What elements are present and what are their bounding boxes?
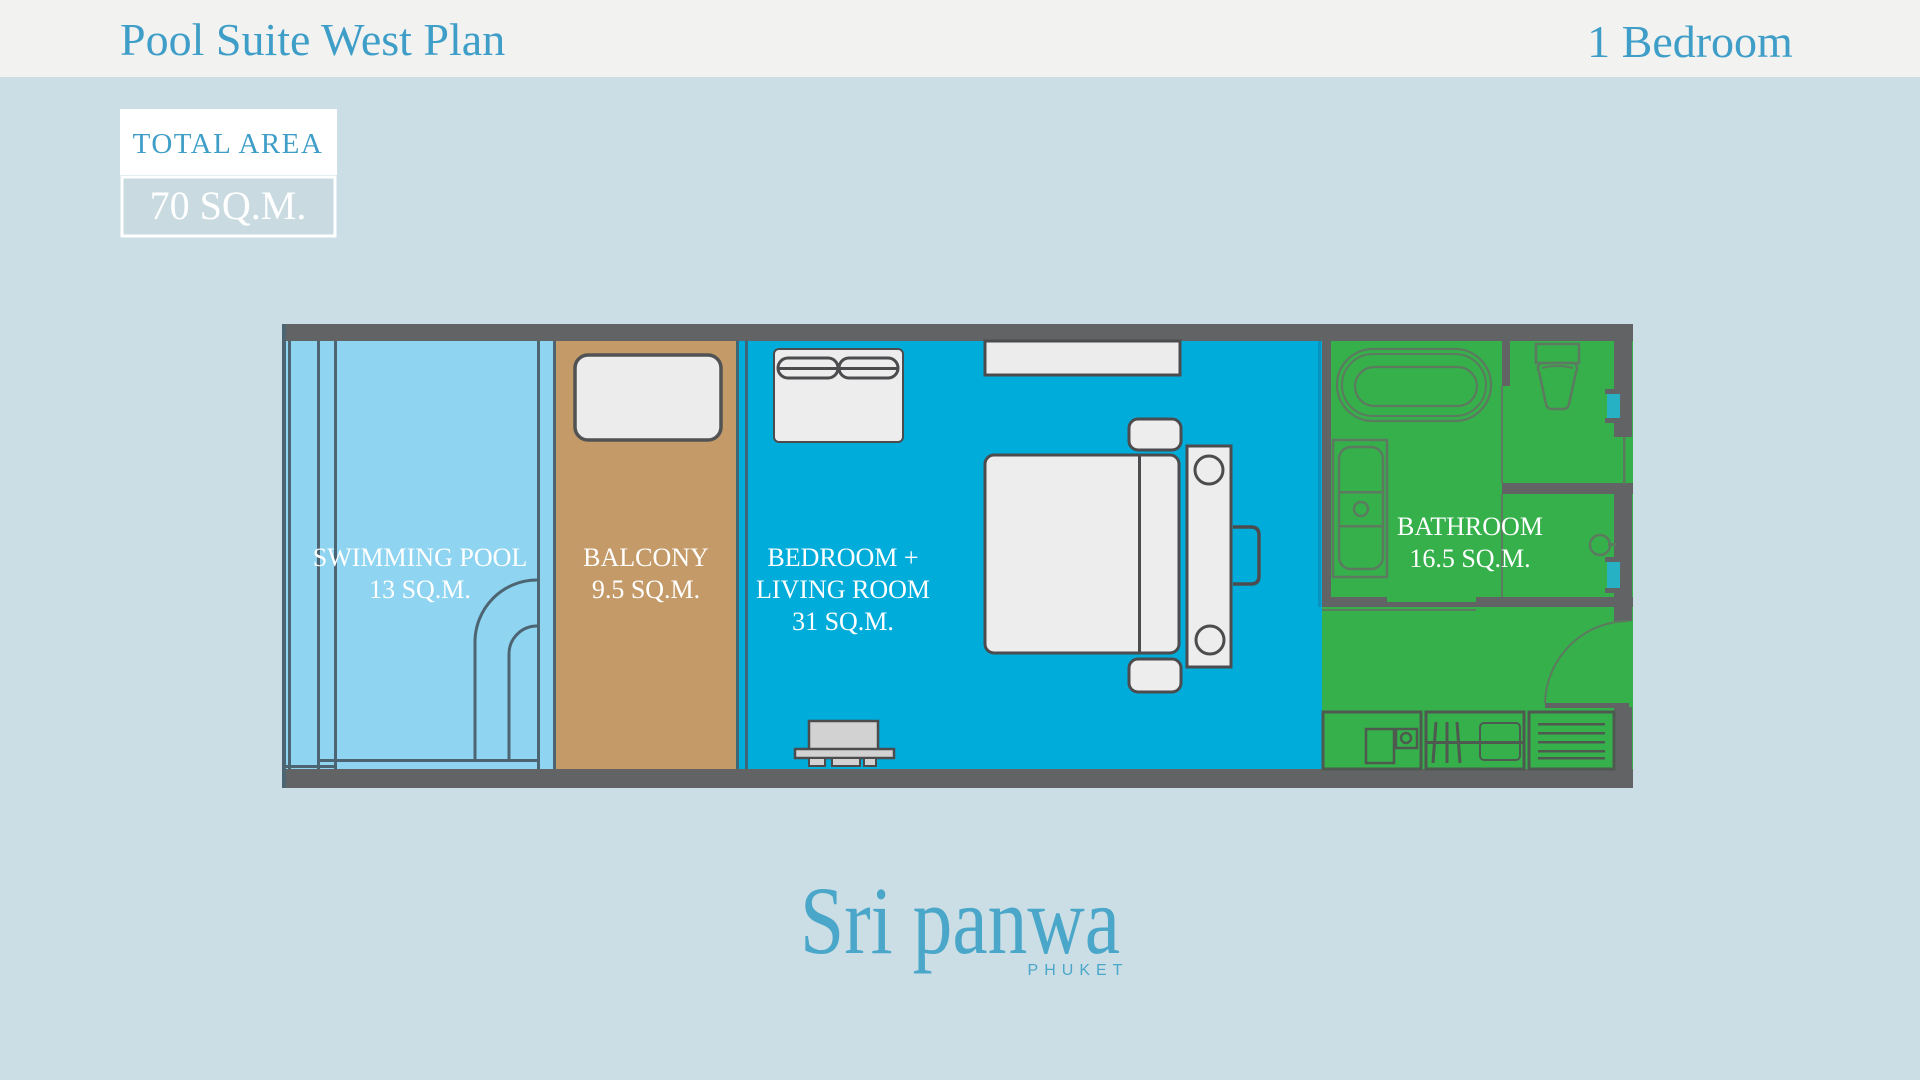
svg-text:BALCONY: BALCONY <box>583 543 709 572</box>
svg-text:Pool Suite West Plan: Pool Suite West Plan <box>120 14 505 65</box>
svg-text:16.5 SQ.M.: 16.5 SQ.M. <box>1409 544 1530 573</box>
svg-text:SWIMMING POOL: SWIMMING POOL <box>313 543 528 572</box>
svg-text:9.5 SQ.M.: 9.5 SQ.M. <box>592 575 700 604</box>
svg-text:PHUKET: PHUKET <box>1028 962 1129 979</box>
svg-text:31 SQ.M.: 31 SQ.M. <box>792 607 894 636</box>
svg-text:70 SQ.M.: 70 SQ.M. <box>150 183 307 228</box>
svg-text:Sri panwa: Sri panwa <box>800 867 1120 974</box>
svg-text:BATHROOM: BATHROOM <box>1397 512 1543 541</box>
svg-text:1 Bedroom: 1 Bedroom <box>1587 16 1793 67</box>
svg-text:BEDROOM +: BEDROOM + <box>767 543 918 572</box>
svg-text:13 SQ.M.: 13 SQ.M. <box>369 575 471 604</box>
svg-text:TOTAL AREA: TOTAL AREA <box>133 128 324 160</box>
svg-text:LIVING ROOM: LIVING ROOM <box>756 575 930 604</box>
